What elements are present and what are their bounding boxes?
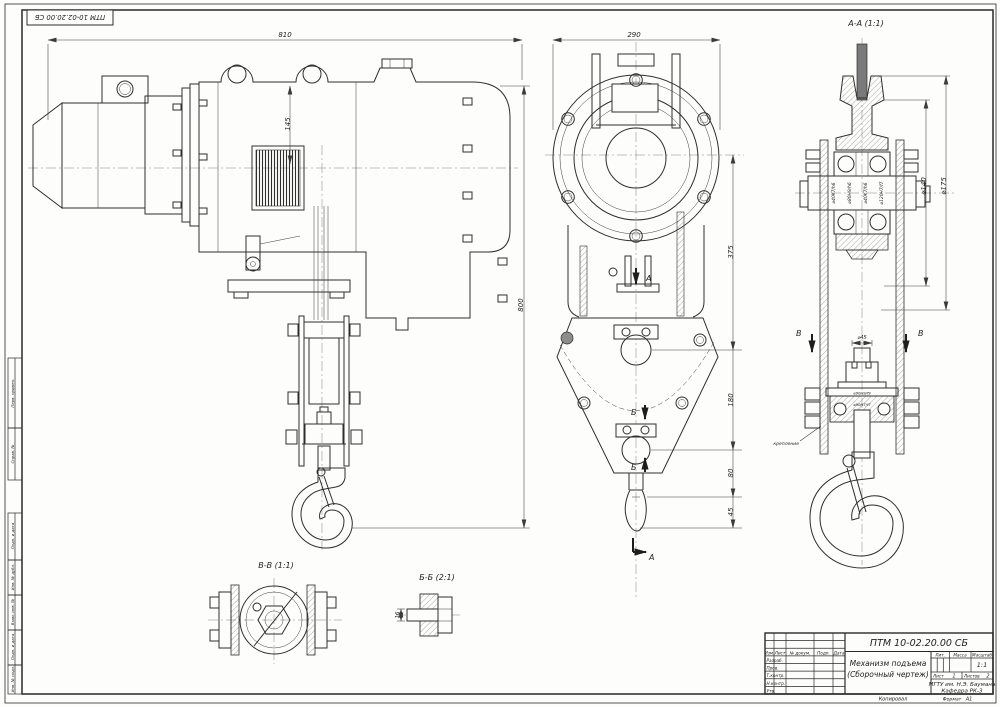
motor bbox=[33, 76, 207, 226]
tb-name-1: Механизм подъема bbox=[850, 659, 927, 668]
drawing-sheet: Перв. примен. Справ. № Подп. и дата Инв.… bbox=[0, 0, 1000, 707]
fit-2: ⌀80H9/h6 bbox=[847, 182, 853, 204]
dim-45: 45 bbox=[727, 507, 735, 516]
rope-falls bbox=[314, 206, 328, 320]
sec-v-right: В bbox=[918, 329, 924, 338]
lit-label: Лит. bbox=[934, 653, 945, 658]
copied-label: Копировал bbox=[879, 697, 908, 703]
scale-label: Масштаб bbox=[972, 653, 992, 658]
dim-290: 290 bbox=[627, 31, 641, 39]
row-utv: Утв. bbox=[767, 689, 776, 694]
col-izm: Изм. bbox=[765, 651, 775, 656]
rope-drum bbox=[252, 146, 304, 210]
bottom-strip: Копировал Формат А1 bbox=[879, 697, 973, 703]
dim-375: 375 bbox=[727, 245, 735, 259]
dim-dia175: ⌀175 bbox=[940, 177, 948, 195]
dim-800: 800 bbox=[517, 298, 525, 312]
stamp-podp1: Подп. и дата bbox=[10, 522, 15, 549]
org-line-1: МГТУ им. Н.Э. Баумана bbox=[929, 682, 996, 688]
hook-edge bbox=[625, 473, 646, 531]
row-prov: Пров. bbox=[767, 666, 779, 671]
section-aa-title: А-А (1:1) bbox=[847, 19, 884, 28]
stamp-vzam: Взам. инв. № bbox=[10, 599, 15, 625]
tb-name-2: (Сборочный чертеж) bbox=[847, 670, 929, 679]
row-nkontr: Н.контр. bbox=[767, 681, 786, 686]
fit-3: ⌀40K7/h6 bbox=[863, 182, 869, 203]
stamp-inv-dubl: Инв. № дубл. bbox=[10, 564, 15, 591]
dim-80: 80 bbox=[727, 468, 735, 477]
fit-1: ⌀40K7/h6 bbox=[831, 182, 837, 203]
rope-presser bbox=[228, 236, 350, 298]
format-value: А1 bbox=[965, 697, 973, 703]
row-razrab: Разраб. bbox=[767, 658, 783, 663]
fit-tr2: ⌀90H7/f7 bbox=[853, 402, 871, 407]
row-tkontr: Т.контр. bbox=[767, 673, 785, 678]
section-vv-title: В-В (1:1) bbox=[258, 561, 294, 570]
stamp-podp2: Подп. и дата bbox=[10, 633, 15, 660]
gear-housing bbox=[199, 59, 510, 330]
corner-stamp: ПТМ 10-02.20.00 СБ bbox=[27, 10, 113, 25]
note-label: крепление bbox=[773, 442, 799, 447]
stamp-perv: Перв. примен. bbox=[10, 378, 15, 407]
suspension bbox=[609, 256, 659, 292]
front-dim-290: 290 bbox=[553, 31, 720, 130]
org-line-2: Кафедра РК-3 bbox=[941, 689, 983, 695]
sheet-frame bbox=[5, 4, 996, 703]
dim-180: 180 bbox=[727, 393, 735, 407]
hook-block bbox=[286, 316, 362, 548]
sec-v-left: В bbox=[796, 329, 802, 338]
dim-145: 145 bbox=[284, 117, 292, 131]
margin-stamp-labels: Перв. примен. Справ. № Подп. и дата Инв.… bbox=[10, 378, 15, 692]
mass-label: Масса bbox=[953, 653, 967, 658]
stamp-inv-podl: Инв. № подл. bbox=[10, 666, 15, 693]
sec-b-top: Б bbox=[631, 408, 637, 417]
col-list: Лист bbox=[774, 651, 786, 656]
view-side: 810 800 145 bbox=[28, 31, 530, 550]
dim-dia140: ⌀140 bbox=[920, 177, 928, 195]
front-dim-chain: 375 180 80 45 bbox=[640, 155, 742, 528]
tb-designation: ПТМ 10-02.20.00 СБ bbox=[870, 638, 969, 649]
section-marks: А А Б Б bbox=[631, 268, 654, 562]
sec-b-bottom: Б bbox=[631, 463, 637, 472]
sheets-label: Листов bbox=[963, 674, 980, 679]
format-label: Формат bbox=[943, 697, 962, 703]
col-sign: Подп. bbox=[817, 651, 830, 656]
scale-value: 1:1 bbox=[977, 661, 987, 669]
sheets-value: 2 bbox=[986, 674, 989, 680]
view-section-vv: В-В (1:1) bbox=[208, 561, 342, 664]
title-block: Изм. Лист № докум. Подп. Дата Разраб. Пр… bbox=[765, 633, 996, 703]
view-section-bb: Б-Б (2:1) 16 bbox=[395, 573, 462, 636]
fit-tr1: ⌀90H9/f9 bbox=[853, 391, 871, 396]
sec-a-top: А bbox=[645, 274, 651, 283]
view-front: 290 bbox=[545, 31, 744, 600]
section-bb-title: Б-Б (2:1) bbox=[419, 573, 455, 582]
col-date: Дата bbox=[833, 651, 845, 656]
view-section-aa: А-А (1:1) ⌀40K7/h6 ⌀80H9/h6 ⌀40K7/h bbox=[773, 19, 955, 568]
dim-810: 810 bbox=[278, 31, 292, 39]
hook-front bbox=[810, 452, 903, 568]
corner-stamp-text: ПТМ 10-02.20.00 СБ bbox=[35, 13, 106, 21]
sec-a-bottom: А bbox=[648, 553, 654, 562]
dim-16: 16 bbox=[395, 611, 401, 618]
fit-4: ⌀120H7/f7 bbox=[879, 181, 885, 204]
dim-stem: ⌀45 bbox=[857, 335, 866, 341]
stamp-sprav: Справ. № bbox=[10, 445, 15, 464]
wire-rope bbox=[857, 44, 867, 100]
col-doc: № докум. bbox=[789, 651, 811, 656]
main-hook bbox=[810, 452, 903, 568]
sheet-label: Лист bbox=[932, 674, 944, 679]
sheet-value: 1 bbox=[952, 674, 955, 680]
